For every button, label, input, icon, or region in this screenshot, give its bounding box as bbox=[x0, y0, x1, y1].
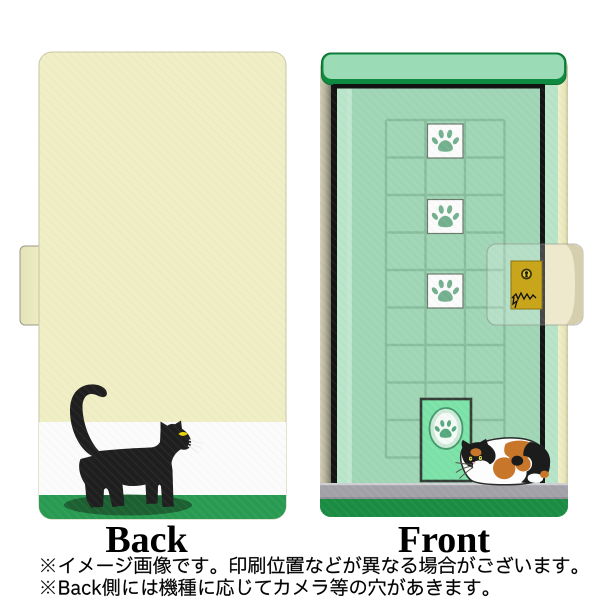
svg-text:Back: Back bbox=[105, 519, 188, 561]
svg-text:Front: Front bbox=[398, 519, 491, 561]
